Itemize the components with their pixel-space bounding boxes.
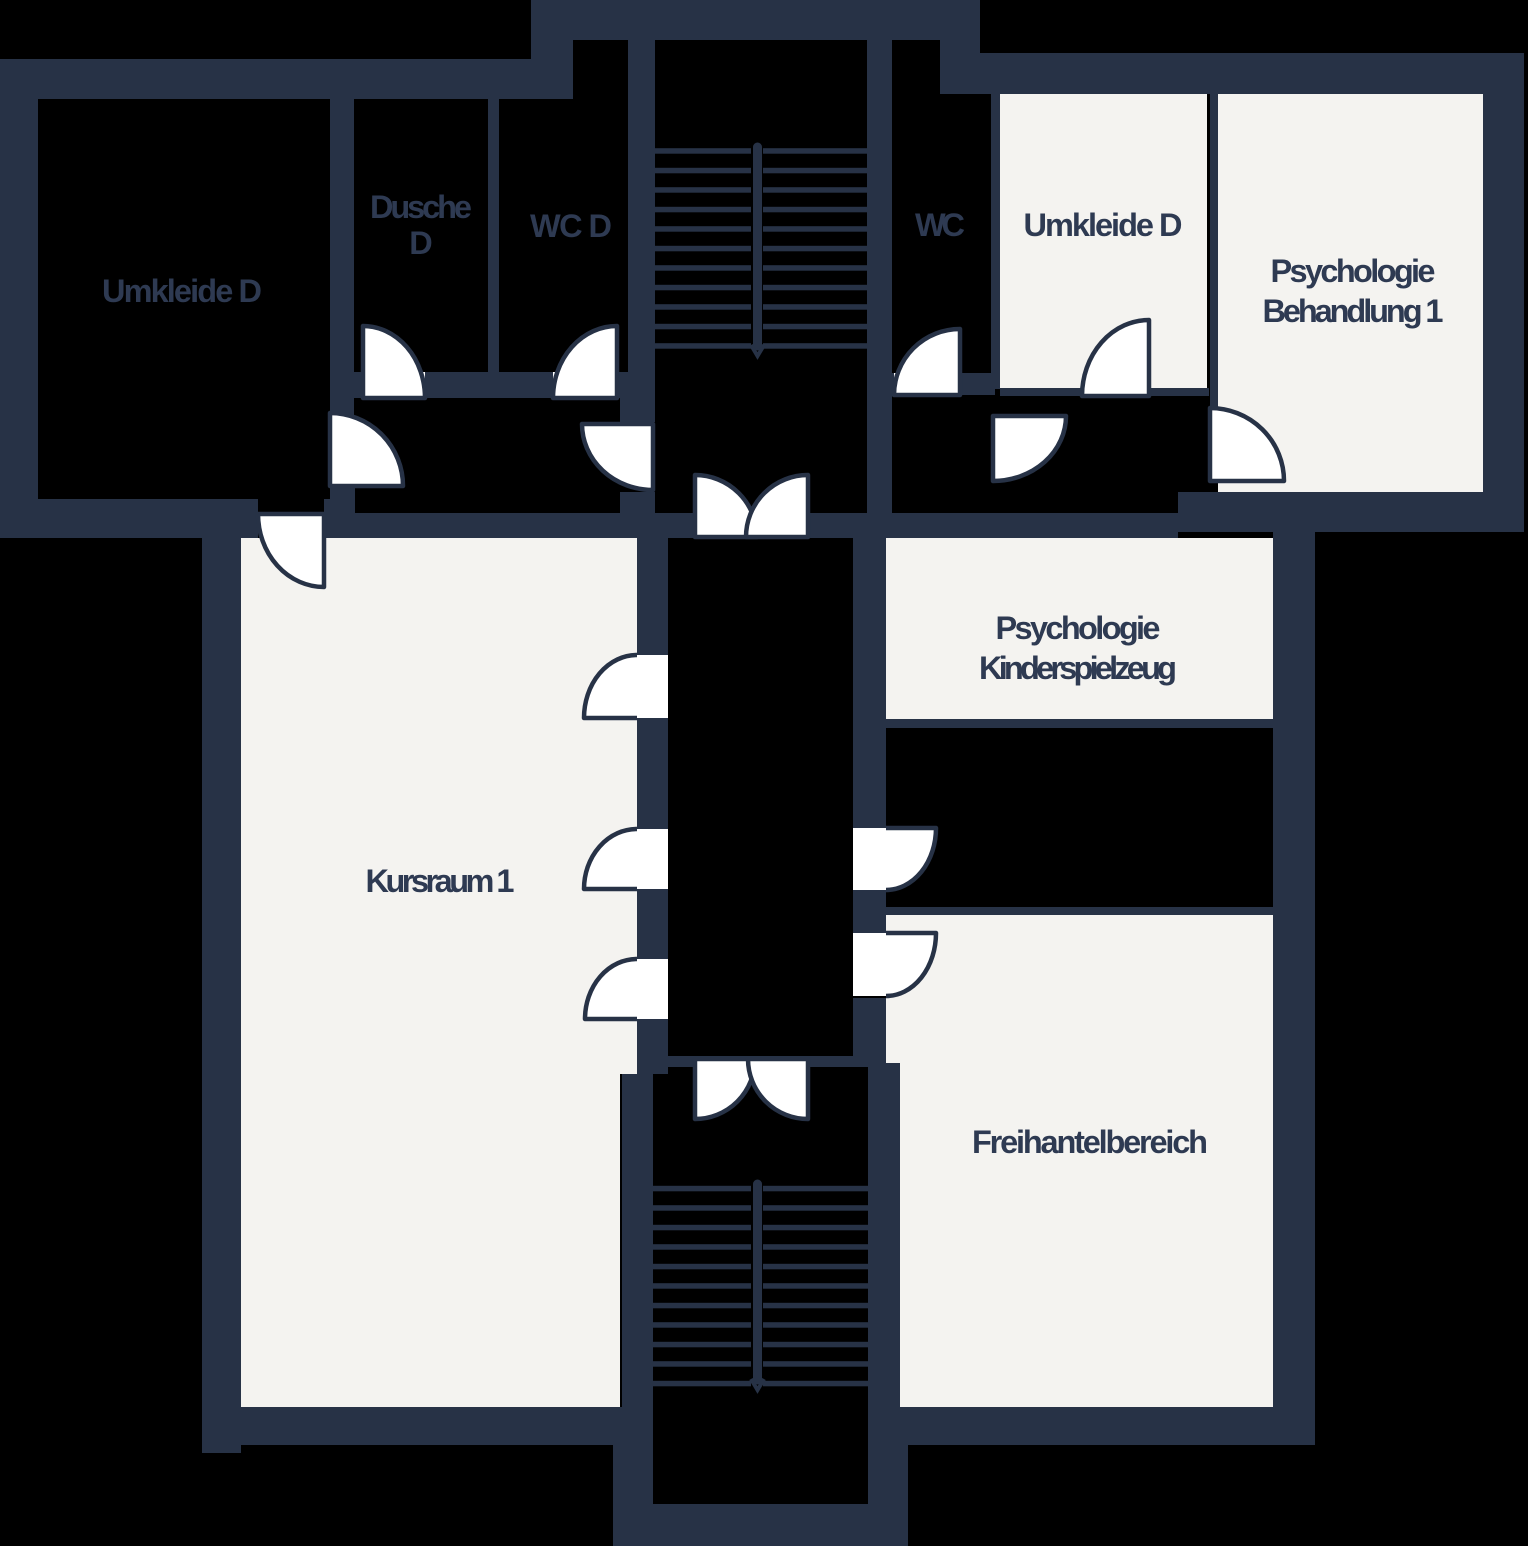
svg-text:Umkleide D: Umkleide D <box>102 273 262 309</box>
svg-text:WC D: WC D <box>530 208 612 244</box>
svg-text:Dusche: Dusche <box>370 189 472 225</box>
svg-text:Kinderspielzeug: Kinderspielzeug <box>979 650 1177 686</box>
svg-text:Psychologie: Psychologie <box>996 610 1161 646</box>
svg-text:WC: WC <box>915 207 965 243</box>
svg-text:D: D <box>409 225 432 261</box>
svg-text:Umkleide D: Umkleide D <box>1024 207 1183 243</box>
svg-text:Psychologie: Psychologie <box>1271 253 1436 289</box>
svg-text:Behandlung 1: Behandlung 1 <box>1263 293 1444 329</box>
svg-text:Freihantelbereich: Freihantelbereich <box>972 1124 1208 1160</box>
svg-text:Kursraum 1: Kursraum 1 <box>366 863 515 899</box>
